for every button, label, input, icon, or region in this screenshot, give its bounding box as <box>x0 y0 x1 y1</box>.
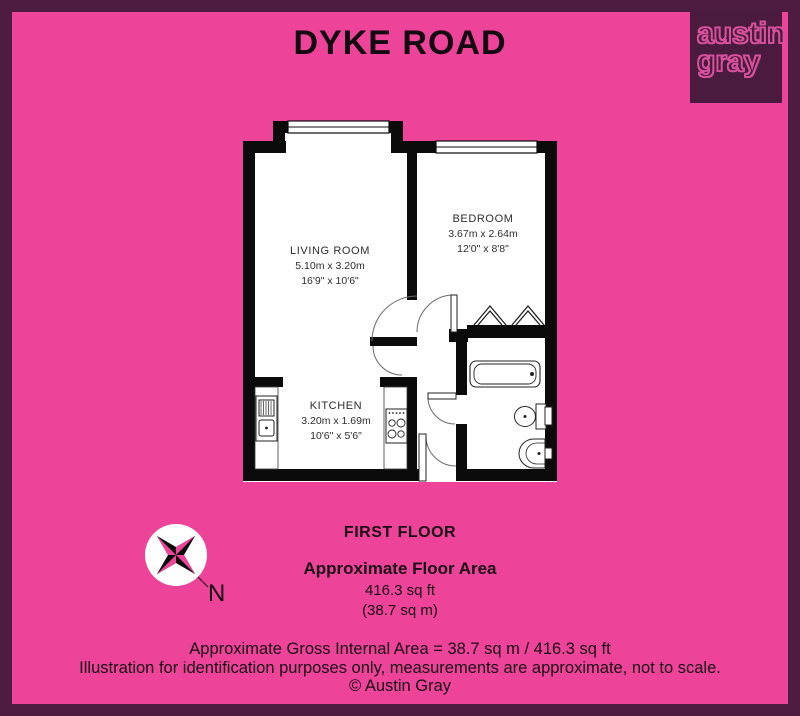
agency-logo-line1: austin <box>697 20 782 48</box>
floor-info: FIRST FLOOR Approximate Floor Area 416.3… <box>0 524 800 619</box>
bedroom-window <box>436 141 537 153</box>
bedroom-metric: 3.67m x 2.64m <box>448 228 518 240</box>
bathtub-icon <box>470 361 540 387</box>
kitchen-label: KITCHEN 3.20m x 1.69m 10'6" x 5'6" <box>301 400 371 442</box>
stove-icon <box>386 409 407 443</box>
living-room-label: LIVING ROOM 5.10m x 3.20m 16'9" x 10'6" <box>290 245 370 287</box>
kitchen-imperial: 10'6" x 5'6" <box>310 430 362 442</box>
copyright: © Austin Gray <box>0 677 800 696</box>
living-room-metric: 5.10m x 3.20m <box>295 260 365 272</box>
kitchen-sink <box>256 396 277 441</box>
area-metric: (38.7 sq m) <box>0 602 800 619</box>
living-room-imperial: 16'9" x 10'6" <box>301 275 359 287</box>
bedroom-label: BEDROOM 3.67m x 2.64m 12'0" x 8'8" <box>448 213 518 255</box>
bedroom-name: BEDROOM <box>452 213 513 225</box>
kitchen-name: KITCHEN <box>310 400 362 412</box>
agency-logo: austin gray <box>690 10 782 103</box>
floorplan-page: DYKE ROAD austin gray <box>0 0 800 716</box>
property-title: DYKE ROAD <box>0 24 800 63</box>
floor-label: FIRST FLOOR <box>0 524 800 542</box>
area-heading: Approximate Floor Area <box>0 559 800 579</box>
bedroom-imperial: 12'0" x 8'8" <box>457 243 509 255</box>
living-room-name: LIVING ROOM <box>290 245 370 257</box>
bay-window <box>288 121 389 133</box>
floor-plan: LIVING ROOM 5.10m x 3.20m 16'9" x 10'6" … <box>240 110 560 482</box>
area-imperial: 416.3 sq ft <box>0 582 800 599</box>
disclaimer-line2: Illustration for identification purposes… <box>0 659 800 678</box>
agency-logo-line2: gray <box>697 48 782 76</box>
kitchen-metric: 3.20m x 1.69m <box>301 415 371 427</box>
disclaimer-line1: Approximate Gross Internal Area = 38.7 s… <box>0 640 800 659</box>
disclaimer: Approximate Gross Internal Area = 38.7 s… <box>0 640 800 696</box>
